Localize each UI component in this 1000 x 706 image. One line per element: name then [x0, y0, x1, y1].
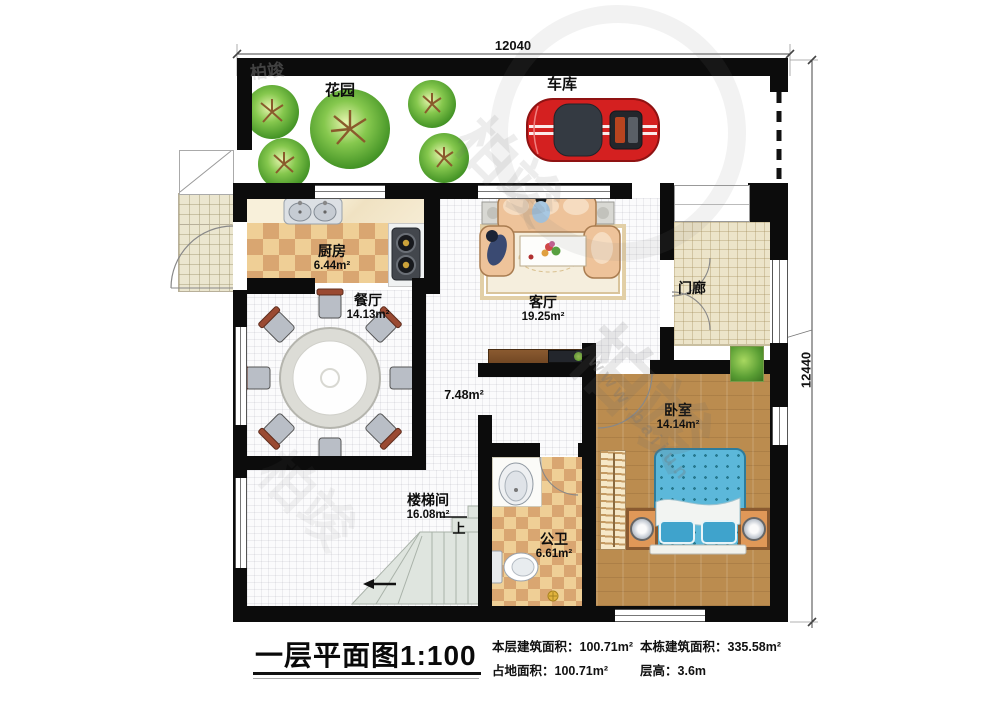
bedroom-window-right — [772, 407, 788, 445]
porch-label: 门廊 — [678, 280, 706, 297]
stairwell-top-wall — [233, 456, 413, 470]
garden-wall-left — [237, 58, 252, 150]
living-label: 客厅19.25m² — [522, 294, 565, 325]
desk-wall — [478, 363, 582, 377]
vector-decor-layer — [0, 0, 1000, 706]
exterior-wall-right-low — [770, 343, 788, 622]
bathroom-left-wall — [478, 415, 492, 608]
bedroom-window-bottom — [615, 609, 705, 622]
garage-label: 车库 — [547, 76, 577, 94]
porch-top-window — [674, 185, 750, 222]
dining-hall-wall — [412, 290, 426, 470]
stat-floor-height: 层高：3.6m — [640, 660, 706, 679]
coffee-table-icon — [520, 236, 586, 266]
stove-icon — [392, 228, 420, 280]
bed-details — [650, 498, 746, 554]
washbasin-icon — [499, 463, 533, 505]
left-window-1 — [235, 327, 247, 425]
plant-icon — [730, 346, 764, 382]
bathroom-label: 公卫6.61m² — [536, 531, 572, 562]
porch-window — [772, 260, 788, 343]
stat-floor-area: 本层建筑面积：100.71m² — [492, 636, 633, 655]
title-underline-2 — [253, 678, 479, 679]
dining-label: 餐厅14.13m² — [347, 292, 390, 323]
canopy-diagonal — [180, 151, 231, 192]
dimension-width: 12040 — [495, 38, 531, 53]
left-window-2 — [235, 478, 247, 568]
stat-total-area: 本栋建筑面积：335.58m² — [640, 636, 781, 655]
living-porch-wall-upper — [660, 183, 674, 260]
floor-drain-icon — [548, 591, 558, 601]
kitchen-label: 厨房6.44m² — [314, 243, 350, 274]
floor-plan: 花园 车库 厨房6.44m² 餐厅14.13m² 客厅19.25m² 门廊 7.… — [0, 0, 1000, 706]
hallway-area-label: 7.48m² — [444, 388, 484, 403]
stairwell-label: 楼梯间16.08m² — [407, 492, 450, 523]
tree-icon — [408, 80, 456, 128]
living-window — [478, 185, 610, 199]
dimension-height: 12440 — [799, 352, 814, 388]
stat-land-area: 占地面积：100.71m² — [492, 660, 608, 679]
plan-title: 一层平面图1:100 — [255, 634, 477, 674]
kitchen-sink-icon — [284, 198, 342, 224]
exterior-wall-top — [237, 58, 788, 76]
tree-icon — [245, 85, 299, 139]
bedroom-left-wall — [582, 343, 596, 608]
bathroom-top-wall — [492, 443, 540, 457]
bedroom-label: 卧室14.14m² — [657, 402, 700, 433]
dining-table-icon — [241, 289, 419, 467]
tree-icon — [419, 133, 469, 183]
kitchen-window — [315, 185, 385, 199]
bathroom-top-wall-stub — [578, 443, 582, 457]
door-arc — [171, 226, 710, 495]
exterior-wall-right-top — [770, 58, 788, 92]
porch-corner-wall — [748, 183, 788, 222]
stairs-up-label: 上 — [452, 519, 465, 538]
garden-label: 花园 — [325, 82, 355, 100]
tree-icon — [310, 89, 390, 169]
kitchen-side-door-opening — [233, 222, 247, 290]
toilet-icon — [490, 551, 538, 583]
car-icon — [527, 99, 659, 161]
title-underline — [253, 672, 481, 675]
